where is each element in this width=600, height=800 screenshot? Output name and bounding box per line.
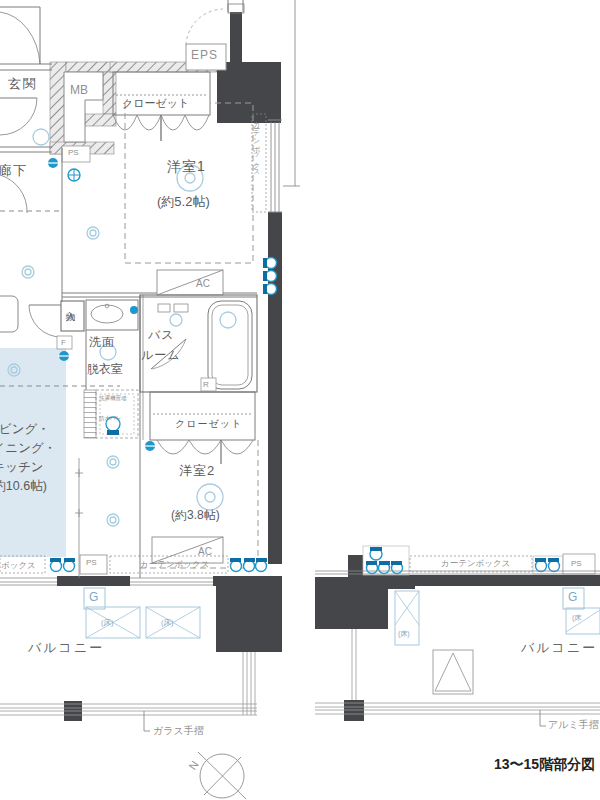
g-right-label: G: [568, 591, 577, 603]
floorplan-drawing: [0, 0, 600, 800]
balcony-right-label: バルコニー: [521, 641, 597, 654]
ac1-label: AC: [196, 279, 210, 289]
curtainbox-room1-label: カーテンボックス: [253, 117, 260, 211]
storage-monoire: [29, 301, 84, 337]
ac2-label: AC: [198, 547, 212, 557]
ps-bottom-right-label: PS: [571, 560, 582, 568]
ldk-label: リビング・ ダイニング・ キッチン (約10.6帖): [0, 420, 70, 496]
ldk-line4: (約10.6帖): [0, 477, 70, 496]
ldk-line2: ダイニング・: [0, 439, 70, 458]
f-mark-label: F: [61, 339, 66, 347]
datsui-label: 脱衣室: [87, 363, 123, 375]
hallway-label: 廊下: [0, 164, 28, 177]
water-control-icon: [130, 306, 138, 314]
closet2-switch-icon: [144, 441, 156, 451]
ps-top-label: PS: [68, 149, 79, 157]
mb-label: MB: [70, 84, 88, 96]
curtainbox-right-label: カーテンボックス: [441, 559, 510, 568]
room1-size-label: (約5.2帖): [157, 195, 210, 208]
floorplan-page: 玄関 MB EPS クローゼット 廊下 PS 洋室1 (約5.2帖) カーテンボ…: [0, 0, 600, 800]
room2-label: 洋室2: [179, 464, 215, 477]
genkan-label: 玄関: [8, 77, 38, 90]
closet1-label: クローゼット: [122, 98, 189, 109]
senmen-label: 洗面: [89, 336, 115, 348]
eps-label: EPS: [191, 49, 218, 61]
curtainbox-room2-label: カーテンボックス: [140, 560, 209, 569]
closet2-label: クローゼット: [175, 419, 242, 429]
floor-hatch2-label: (床): [161, 619, 174, 627]
bathroom: [140, 295, 257, 392]
ldk-line1: リビング・: [0, 420, 70, 439]
r-mark-label: R: [203, 381, 209, 389]
room2-size-label: (約3.8帖): [171, 509, 220, 521]
aluminum-handrail-label: アルミ手摺: [548, 720, 599, 730]
g-left-label: G: [89, 591, 98, 603]
washer-pan-label: 防水パン: [99, 416, 121, 422]
glass-handrail-label: ガラス手摺: [153, 726, 204, 736]
floor-caption: 13〜15階部分図: [494, 757, 595, 771]
ps-bottom-left-label: PS: [86, 559, 97, 567]
bath-label-2: ルーム: [141, 349, 181, 361]
balcony-left-label: バルコニー: [28, 641, 104, 654]
floor-hatch4-label: (床: [572, 614, 581, 621]
fragment-columns: [315, 555, 600, 721]
floor-hatch1-label: (床): [101, 619, 114, 627]
ldk-line3: キッチン: [0, 458, 70, 477]
compass-icon: [198, 752, 246, 799]
floor-hatch3-label: (床): [398, 630, 410, 637]
ac-unit-room1: [157, 270, 223, 295]
curtainbox-left-partial-label: ボックス: [1, 561, 36, 570]
room1-label: 洋室1: [167, 159, 206, 173]
bath-label-1: バス: [148, 329, 175, 341]
washer-area-label: 洗濯機置場: [99, 396, 127, 402]
